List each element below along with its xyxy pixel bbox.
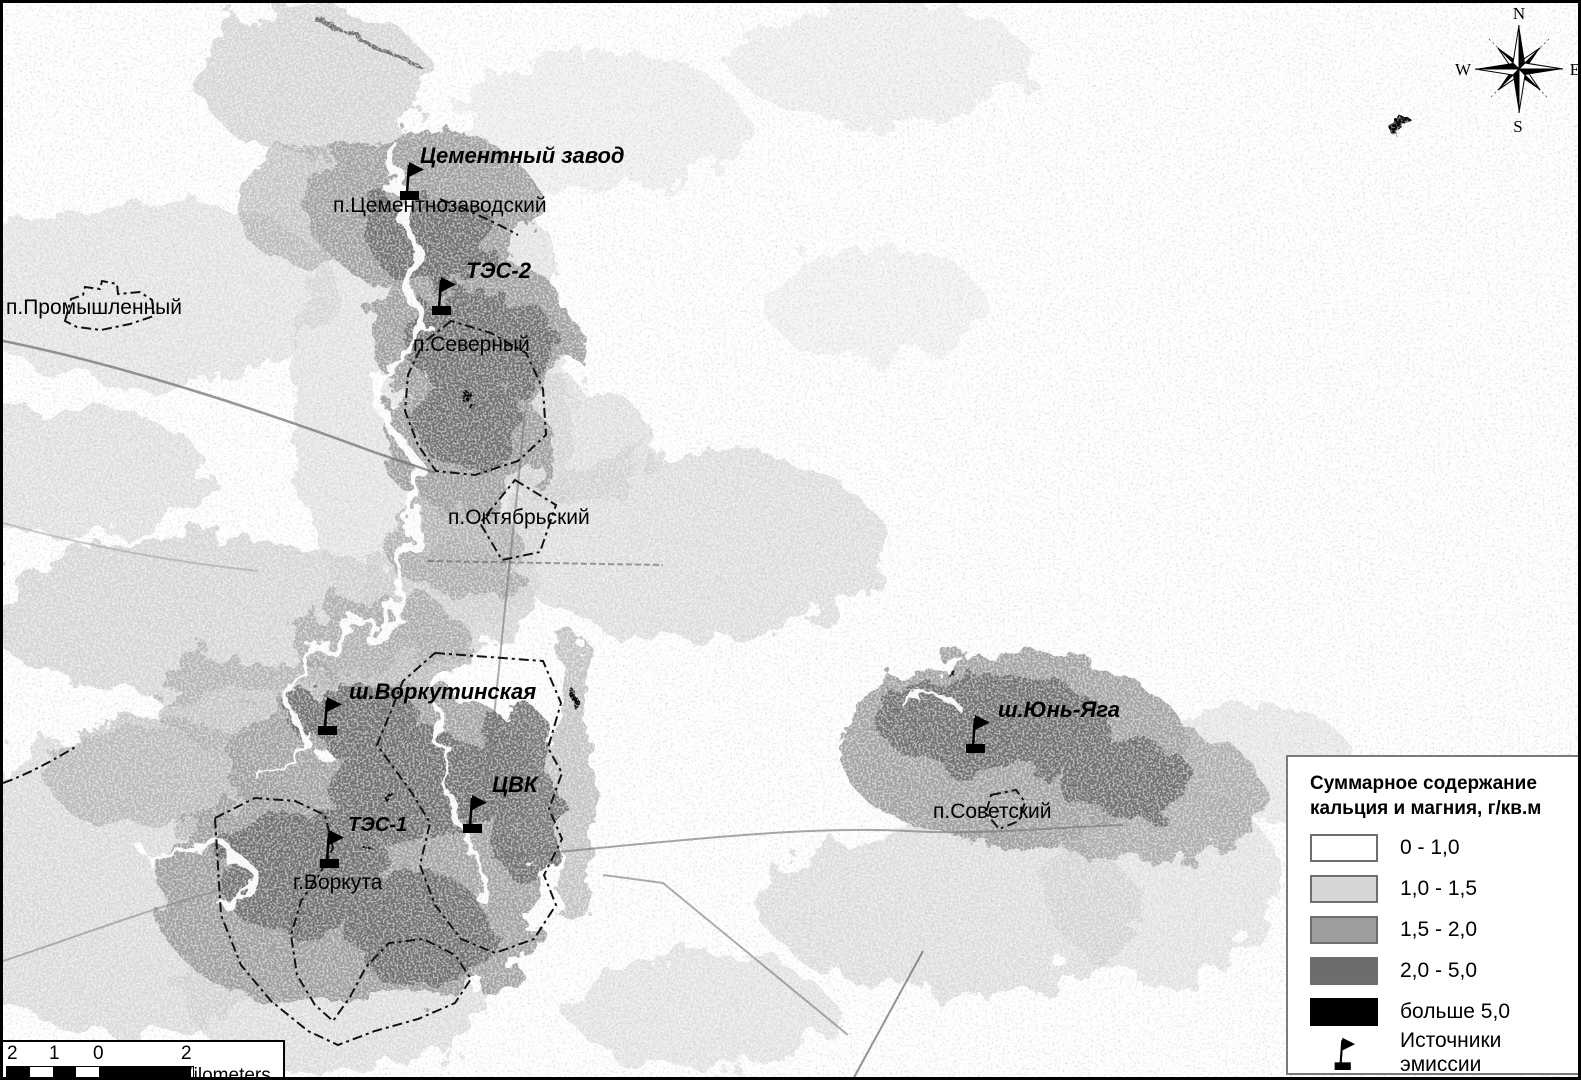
map-label-tes-1: ТЭС-1	[348, 815, 407, 836]
map-label-severny: п.Северный	[413, 334, 530, 356]
map-label-vorkuta: г.Воркута	[293, 872, 382, 894]
emission-flag-icon	[1332, 1036, 1356, 1070]
emission-flag-icon	[460, 793, 488, 833]
legend-swatch-1-1_5	[1310, 875, 1378, 903]
map-label-vorkutinskaya: ш.Воркутинская	[349, 680, 536, 703]
scale-unit-label: 2 Kilometers	[181, 1043, 283, 1080]
scale-tick-label: 0	[93, 1043, 104, 1065]
scale-tick-label: 2	[7, 1043, 18, 1065]
scale-bar-segments	[6, 1066, 194, 1080]
emission-flag-icon	[317, 828, 345, 868]
map-label-oktyabrsky: п.Октябрьский	[448, 507, 590, 529]
legend-row: больше 5,0	[1310, 998, 1571, 1026]
legend-row: 1,5 - 2,0	[1310, 916, 1571, 944]
emission-flag-icon	[315, 695, 343, 735]
legend-class-label: 1,5 - 2,0	[1400, 918, 1477, 942]
map-label-yun-yaga: ш.Юнь-Яга	[998, 698, 1120, 721]
map-label-sovetsky: п.Советский	[933, 801, 1051, 823]
legend-class-label: 1,0 - 1,5	[1400, 877, 1477, 901]
legend-swatch-over-5	[1310, 998, 1378, 1026]
compass-west-label: W	[1455, 60, 1472, 79]
legend-swatch-0-1	[1310, 834, 1378, 862]
map-label-cement-plant: Цементный завод	[420, 144, 625, 167]
legend-row: 1,0 - 1,5	[1310, 875, 1571, 903]
emission-flag-icon	[963, 713, 991, 753]
legend-class-label: 0 - 1,0	[1400, 836, 1460, 860]
legend-swatch-1_5-2	[1310, 916, 1378, 944]
legend-swatch-2-5	[1310, 957, 1378, 985]
map-label-tes-2: ТЭС-2	[466, 259, 531, 282]
legend-row: 0 - 1,0	[1310, 834, 1571, 862]
legend-row: 2,0 - 5,0	[1310, 957, 1571, 985]
map-label-promyshlenny: п.Промышленный	[6, 297, 182, 319]
emission-flag-icon	[429, 275, 457, 315]
legend-row-emission-sources: Источники эмиссии	[1310, 1039, 1571, 1067]
compass-north-label: N	[1513, 4, 1525, 23]
map-label-cvk: ЦВК	[492, 773, 537, 796]
legend-emission-label: Источники эмиссии	[1400, 1029, 1571, 1077]
compass-east-label: E	[1570, 60, 1580, 79]
legend-class-label: больше 5,0	[1400, 1000, 1510, 1024]
map-label-cementnozavodsky: п.Цементнозаводский	[333, 195, 547, 217]
compass-south-label: S	[1513, 117, 1522, 135]
map-canvas: Цементный завод ТЭС-2 ш.Воркутинская ЦВК…	[0, 0, 1581, 1080]
scale-tick-label: 1	[49, 1043, 60, 1065]
compass-rose-icon: N E S W	[1453, 3, 1581, 135]
legend-class-label: 2,0 - 5,0	[1400, 959, 1477, 983]
legend: Суммарное содержание кальция и магния, г…	[1286, 755, 1581, 1075]
legend-title: Суммарное содержание кальция и магния, г…	[1310, 771, 1571, 821]
scale-bar: 2 1 0 2 Kilometers	[3, 1040, 285, 1080]
